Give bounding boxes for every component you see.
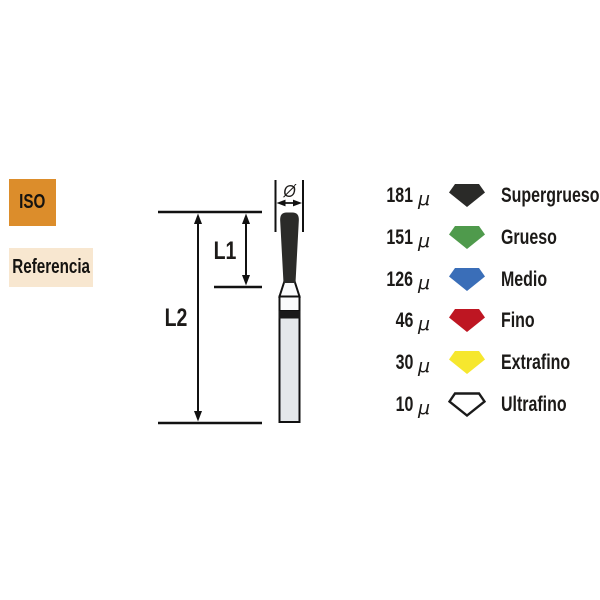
grit-name: Extrafino (501, 351, 592, 375)
grit-name: Supergrueso (501, 184, 600, 208)
legend-row-grueso: 151 μ Grueso (375, 225, 575, 250)
grit-value: 46 (375, 309, 413, 333)
legend-row-extrafino: 30 μ Extrafino (375, 350, 592, 375)
bur-head (280, 213, 299, 284)
legend-row-medio: 126 μ Medio (375, 267, 562, 292)
l2-dimension-arrow (194, 214, 202, 422)
diamond-icon (448, 308, 486, 333)
grit-value: 10 (375, 393, 413, 417)
micron-symbol: μ (413, 272, 442, 294)
diameter-symbol-label: Ø (282, 181, 297, 201)
grit-name: Medio (501, 268, 562, 292)
grit-value: 126 (375, 268, 413, 292)
bur-ring-band (279, 311, 301, 319)
micron-symbol: μ (413, 397, 442, 419)
grit-name: Grueso (501, 226, 575, 250)
micron-symbol: μ (413, 355, 442, 377)
diamond-icon (448, 267, 486, 292)
legend-row-ultrafino: 10 μ Ultrafino (375, 392, 587, 417)
bur-shank (280, 311, 300, 422)
legend-row-supergrueso: 181 μ Supergrueso (375, 183, 600, 208)
diamond-icon (448, 183, 486, 208)
bur-illustration (279, 213, 301, 423)
micron-symbol: μ (413, 188, 442, 210)
grit-value: 30 (375, 351, 413, 375)
bur-neck (280, 281, 300, 297)
bur-technical-drawing: L1 L2 Ø (0, 0, 600, 600)
diamond-icon (448, 392, 486, 417)
micron-symbol: μ (413, 230, 442, 252)
grit-value: 151 (375, 226, 413, 250)
l2-dimension-label: L2 (165, 304, 188, 332)
diamond-icon (448, 225, 486, 250)
l1-dimension-arrow (242, 214, 250, 286)
micron-symbol: μ (413, 313, 442, 335)
grit-name: Fino (501, 309, 545, 333)
bur-collar (280, 297, 300, 312)
grit-name: Ultrafino (501, 393, 587, 417)
legend-row-fino: 46 μ Fino (375, 308, 545, 333)
bur-spec-diagram: ISO Referencia L1 L2 (0, 0, 600, 600)
diamond-icon (448, 350, 486, 375)
grit-value: 181 (375, 184, 413, 208)
l1-dimension-label: L1 (214, 237, 237, 265)
